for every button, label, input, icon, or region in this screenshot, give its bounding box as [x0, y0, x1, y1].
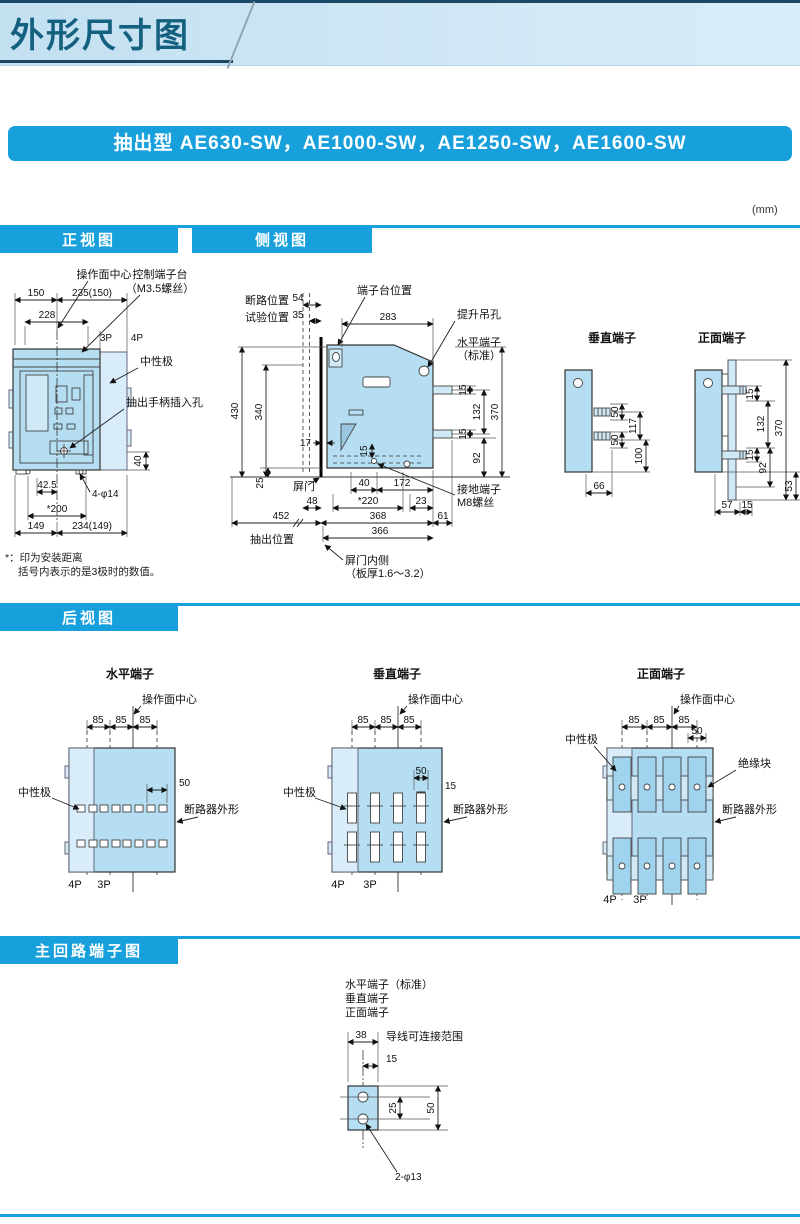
svg-text:操作面中心: 操作面中心: [680, 692, 735, 706]
svg-text:85: 85: [678, 715, 690, 726]
svg-text:117: 117: [628, 418, 639, 434]
svg-text:85: 85: [403, 715, 415, 726]
svg-text:368: 368: [370, 511, 387, 522]
rear-front-terminal: 正面端子 操作面中心 85 85 85 50: [565, 666, 777, 906]
svg-text:操作面中心: 操作面中心: [77, 267, 132, 281]
svg-text:屏门: 屏门: [293, 479, 315, 493]
svg-text:370: 370: [490, 403, 501, 420]
catalog-page: 外形尺寸图 抽出型 AE630-SW，AE1000-SW，AE1250-SW，A…: [0, 0, 800, 1224]
svg-text:50: 50: [610, 434, 621, 446]
svg-text:57: 57: [721, 500, 733, 511]
svg-text:（标准）: （标准）: [457, 348, 501, 362]
svg-text:15: 15: [741, 500, 753, 511]
svg-text:导线可连接范围: 导线可连接范围: [386, 1029, 463, 1043]
svg-text:垂直端子: 垂直端子: [588, 330, 636, 345]
svg-text:垂直端子: 垂直端子: [373, 666, 421, 681]
svg-text:垂直端子: 垂直端子: [345, 991, 389, 1005]
side-view-drawing: 断路位置 54 试验位置 35 端子台位置 283 提升吊孔 水平端子 （标准）…: [185, 255, 800, 600]
svg-text:234(149): 234(149): [72, 521, 112, 532]
svg-text:M8螺丝: M8螺丝: [457, 496, 494, 509]
svg-text:15: 15: [359, 445, 370, 457]
front-view-drawing: 150 235(150) 228 3P 4P 操作面中心 控制端子台 （M3.5…: [0, 255, 185, 600]
svg-text:100: 100: [634, 447, 645, 464]
svg-text:35: 35: [292, 310, 304, 321]
section-header-rear-view: 后视图: [0, 606, 178, 631]
svg-text:370: 370: [774, 419, 785, 436]
svg-text:正面端子: 正面端子: [698, 330, 746, 345]
main-circuit-dimensions: 38 导线可连接范围 15 25 50 2-φ13: [340, 1029, 463, 1183]
svg-text:断路器外形: 断路器外形: [722, 802, 777, 816]
svg-text:25: 25: [388, 1102, 399, 1114]
svg-text:4P: 4P: [131, 333, 144, 344]
svg-text:85: 85: [92, 715, 104, 726]
svg-text:172: 172: [394, 478, 411, 489]
svg-text:50: 50: [691, 726, 703, 737]
svg-text:（板厚1.6～3.2）: （板厚1.6～3.2）: [345, 566, 431, 580]
svg-text:85: 85: [380, 715, 392, 726]
svg-text:2-φ13: 2-φ13: [395, 1172, 422, 1183]
svg-text:3P: 3P: [633, 894, 646, 906]
svg-text:端子台位置: 端子台位置: [357, 283, 412, 297]
svg-text:*220: *220: [358, 496, 379, 507]
svg-text:中性极: 中性极: [283, 785, 316, 799]
svg-text:149: 149: [28, 521, 45, 532]
svg-text:132: 132: [472, 403, 483, 420]
svg-text:50: 50: [426, 1102, 437, 1114]
svg-text:366: 366: [372, 526, 389, 537]
vertical-terminal-drawing: 垂直端子 50 117 50 100 66: [565, 330, 650, 497]
svg-text:40: 40: [133, 455, 144, 467]
svg-text:150: 150: [28, 288, 45, 299]
diagonal-divider: [227, 1, 256, 69]
svg-text:3P: 3P: [100, 333, 113, 344]
bottom-rule: [0, 1214, 800, 1217]
svg-text:15: 15: [745, 449, 756, 461]
svg-text:50: 50: [415, 766, 427, 777]
svg-text:4P: 4P: [331, 879, 344, 891]
svg-text:66: 66: [593, 481, 605, 492]
model-banner: 抽出型 AE630-SW，AE1000-SW，AE1250-SW，AE1600-…: [8, 126, 792, 161]
svg-text:中性极: 中性极: [140, 354, 173, 368]
svg-text:断路器外形: 断路器外形: [184, 802, 239, 816]
svg-text:85: 85: [357, 715, 369, 726]
svg-text:15: 15: [386, 1054, 398, 1065]
svg-text:48: 48: [306, 496, 318, 507]
svg-text:试验位置: 试验位置: [245, 310, 289, 324]
svg-text:4P: 4P: [603, 894, 616, 906]
svg-text:3P: 3P: [97, 879, 110, 891]
svg-text:提升吊孔: 提升吊孔: [457, 308, 501, 321]
rear-view-drawing: 水平端子 操作面中心 85 85 85: [0, 636, 800, 932]
svg-text:水平端子（标准）: 水平端子（标准）: [345, 977, 433, 991]
svg-text:85: 85: [139, 715, 151, 726]
svg-text:正面端子: 正面端子: [345, 1006, 389, 1019]
svg-text:340: 340: [254, 403, 265, 420]
svg-text:228: 228: [39, 310, 56, 321]
svg-text:接地端子: 接地端子: [457, 483, 501, 496]
section-header-main-circuit: 主回路端子图: [0, 939, 178, 964]
main-circuit-terminal-drawing: 水平端子（标准） 垂直端子 正面端子 38 导线可连接范围 15 25 50 2…: [330, 973, 570, 1185]
svg-text:屏门内侧: 屏门内侧: [345, 553, 389, 567]
svg-text:85: 85: [628, 715, 640, 726]
svg-text:3P: 3P: [363, 879, 376, 891]
page-title: 外形尺寸图: [10, 8, 190, 57]
footnote-line2: 括号内表示的是3极时的数值。: [18, 564, 160, 579]
svg-text:430: 430: [230, 402, 241, 419]
svg-text:25: 25: [255, 477, 266, 489]
svg-text:61: 61: [437, 511, 449, 522]
rear-vertical-terminal: 垂直端子 操作面中心 85 85 85: [283, 666, 508, 892]
rear-horizontal-terminal: 水平端子 操作面中心 85 85 85: [18, 666, 239, 892]
svg-text:15: 15: [745, 388, 756, 400]
title-underline: [0, 60, 233, 63]
svg-text:42.5: 42.5: [37, 480, 57, 491]
svg-text:50: 50: [179, 778, 191, 789]
svg-text:23: 23: [415, 496, 427, 507]
section-header-side-view: 侧视图: [192, 228, 372, 253]
svg-text:操作面中心: 操作面中心: [408, 692, 463, 706]
svg-text:50: 50: [610, 406, 621, 418]
svg-text:17: 17: [300, 438, 312, 449]
svg-text:*200: *200: [47, 504, 68, 515]
svg-text:操作面中心: 操作面中心: [142, 692, 197, 706]
footnote-line1: *：印为安装距离: [5, 550, 83, 565]
svg-text:抽出位置: 抽出位置: [250, 532, 294, 546]
svg-text:绝缘块: 绝缘块: [738, 756, 771, 770]
svg-text:正面端子: 正面端子: [637, 666, 685, 681]
svg-text:132: 132: [756, 415, 767, 432]
svg-text:控制端子台: 控制端子台: [133, 267, 188, 281]
unit-note: (mm): [752, 204, 778, 216]
section-header-front-view: 正视图: [0, 228, 178, 253]
svg-text:断路位置: 断路位置: [245, 293, 289, 307]
svg-text:中性极: 中性极: [565, 732, 598, 746]
svg-text:40: 40: [358, 478, 370, 489]
svg-text:85: 85: [653, 715, 665, 726]
svg-text:85: 85: [115, 715, 127, 726]
svg-text:4-φ14: 4-φ14: [92, 489, 119, 500]
svg-text:92: 92: [758, 462, 769, 474]
svg-text:4P: 4P: [68, 879, 81, 891]
svg-text:（M3.5螺丝）: （M3.5螺丝）: [126, 282, 194, 295]
front-terminal-drawing: 正面端子 15 132 15 92: [695, 330, 800, 516]
svg-text:15: 15: [458, 384, 469, 396]
svg-text:53: 53: [784, 480, 795, 492]
svg-text:283: 283: [380, 312, 397, 323]
svg-text:15: 15: [458, 428, 469, 440]
svg-text:92: 92: [472, 452, 483, 464]
svg-text:15: 15: [445, 781, 457, 792]
svg-text:54: 54: [292, 293, 304, 304]
svg-text:水平端子: 水平端子: [106, 666, 154, 681]
svg-text:中性极: 中性极: [18, 785, 51, 799]
svg-text:452: 452: [273, 511, 290, 522]
svg-text:38: 38: [355, 1030, 367, 1041]
svg-text:断路器外形: 断路器外形: [453, 802, 508, 816]
